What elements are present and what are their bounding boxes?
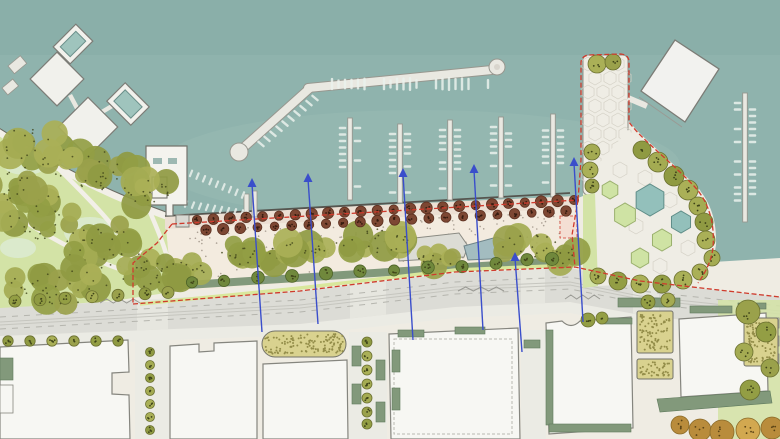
garden-speckle bbox=[656, 324, 658, 326]
green-hex-garden bbox=[631, 248, 648, 268]
brown-tree bbox=[421, 202, 433, 214]
moored-boat bbox=[542, 162, 550, 164]
garden-speckle bbox=[656, 341, 658, 343]
paving-speckle bbox=[453, 228, 455, 230]
garden-speckle bbox=[666, 327, 668, 329]
garden-speckle bbox=[639, 341, 641, 343]
brown-tree bbox=[459, 212, 468, 221]
brown-tree bbox=[235, 223, 246, 234]
garden-speckle bbox=[644, 325, 646, 327]
garden-speckle bbox=[768, 356, 770, 358]
paving-speckle bbox=[420, 220, 422, 222]
olive-tree bbox=[113, 336, 123, 346]
paving-speckle bbox=[438, 217, 440, 219]
planter bbox=[0, 358, 13, 380]
moored-boat bbox=[339, 153, 347, 155]
garden-speckle bbox=[329, 348, 331, 350]
garden-speckle bbox=[292, 339, 294, 341]
planter bbox=[546, 330, 553, 425]
olive-tree bbox=[653, 275, 671, 293]
garden-speckle bbox=[651, 326, 653, 328]
garden-speckle bbox=[663, 362, 665, 364]
paving-speckle bbox=[247, 227, 249, 229]
brown-tree bbox=[389, 205, 398, 214]
moored-boat bbox=[389, 152, 397, 154]
garden-speckle bbox=[756, 357, 758, 359]
garden-speckle bbox=[748, 361, 750, 363]
moored-boat bbox=[350, 79, 352, 90]
planter bbox=[690, 306, 732, 313]
garden-speckle bbox=[666, 346, 668, 348]
garden-speckle bbox=[752, 328, 754, 330]
brown-tree bbox=[355, 217, 365, 227]
olive-tree bbox=[596, 312, 608, 324]
garden-speckle bbox=[750, 337, 752, 339]
planter bbox=[352, 384, 361, 404]
garden-speckle bbox=[266, 337, 268, 339]
moored-boat bbox=[404, 191, 412, 193]
moored-boat bbox=[467, 78, 469, 90]
moored-boat bbox=[490, 165, 498, 167]
garden-speckle bbox=[337, 341, 339, 343]
garden-speckle bbox=[265, 349, 267, 351]
garden-speckle bbox=[666, 348, 668, 350]
garden-speckle bbox=[773, 351, 775, 353]
garden-speckle bbox=[289, 341, 291, 343]
moored-boat bbox=[490, 132, 498, 134]
garden-speckle bbox=[647, 322, 649, 324]
moored-boat bbox=[454, 142, 462, 144]
paving-speckle bbox=[333, 227, 335, 229]
olive-tree bbox=[648, 152, 668, 172]
olive-tree bbox=[362, 419, 372, 429]
paving-speckle bbox=[543, 218, 545, 220]
garden-speckle bbox=[333, 344, 335, 346]
garden-speckle bbox=[659, 314, 661, 316]
brown-tree bbox=[321, 219, 330, 228]
garden-speckle bbox=[758, 340, 760, 342]
garden-speckle bbox=[774, 346, 776, 348]
garden-speckle bbox=[328, 339, 330, 341]
paving-speckle bbox=[339, 236, 341, 238]
moored-boat bbox=[749, 134, 757, 136]
rooftop-unit bbox=[0, 385, 13, 413]
moored-boat bbox=[749, 115, 757, 117]
garden-speckle bbox=[336, 336, 338, 338]
garden-speckle bbox=[279, 350, 281, 352]
moored-boat bbox=[490, 139, 498, 141]
harbor-building-slot bbox=[168, 158, 177, 164]
planter bbox=[352, 346, 361, 366]
paving-speckle bbox=[382, 226, 384, 228]
garden-speckle bbox=[334, 333, 336, 335]
paving-speckle bbox=[265, 230, 267, 232]
brown-tree bbox=[274, 211, 283, 220]
olive-tree bbox=[362, 337, 372, 347]
garden-speckle bbox=[326, 340, 328, 342]
garden-speckle bbox=[652, 361, 654, 363]
brown-tree bbox=[304, 220, 314, 230]
moored-boat bbox=[404, 139, 412, 141]
garden-speckle bbox=[668, 318, 670, 320]
garden-speckle bbox=[264, 338, 266, 340]
garden-speckle bbox=[754, 358, 756, 360]
garden-speckle bbox=[653, 372, 655, 374]
moored-boat bbox=[344, 79, 346, 90]
moored-boat bbox=[415, 79, 417, 89]
paving-speckle bbox=[189, 238, 191, 240]
garden-speckle bbox=[652, 346, 654, 348]
moored-boat bbox=[749, 173, 757, 175]
sage-tree bbox=[422, 261, 435, 274]
olive-tree bbox=[69, 336, 79, 346]
brown-tree bbox=[270, 222, 279, 231]
paving-speckle bbox=[228, 233, 230, 235]
garden-speckle bbox=[654, 339, 656, 341]
paving-speckle bbox=[522, 217, 524, 219]
brown-tree bbox=[208, 214, 219, 225]
olive-tree bbox=[697, 231, 715, 249]
paving-speckle bbox=[201, 239, 203, 241]
moored-boat bbox=[439, 168, 447, 170]
garden-speckle bbox=[639, 324, 641, 326]
garden-speckle bbox=[284, 351, 286, 353]
garden-speckle bbox=[270, 351, 272, 353]
paving-speckle bbox=[543, 225, 545, 227]
olive-tree bbox=[740, 380, 760, 400]
moored-boat bbox=[357, 79, 359, 90]
olive-tree bbox=[631, 275, 649, 293]
garden-speckle bbox=[641, 321, 643, 323]
paving-speckle bbox=[474, 234, 476, 236]
moored-boat bbox=[441, 78, 443, 91]
garden-speckle bbox=[312, 342, 314, 344]
garden-speckle bbox=[752, 326, 754, 328]
brown-tree bbox=[287, 221, 297, 231]
site-plan-canvas bbox=[0, 0, 780, 439]
moored-boat bbox=[339, 127, 347, 129]
garden-speckle bbox=[311, 347, 313, 349]
garden-speckle bbox=[666, 340, 668, 342]
green-hex-garden bbox=[652, 229, 671, 251]
olive-tree bbox=[162, 286, 174, 298]
building bbox=[546, 317, 633, 434]
garden-speckle bbox=[286, 352, 288, 354]
moored-boat bbox=[339, 140, 347, 142]
orange-tree bbox=[736, 418, 760, 439]
building bbox=[263, 360, 348, 439]
garden-speckle bbox=[650, 335, 652, 337]
moored-boat bbox=[331, 78, 333, 90]
brown-tree bbox=[192, 215, 201, 224]
garden-speckle bbox=[750, 361, 752, 363]
garden-speckle bbox=[651, 341, 653, 343]
planter bbox=[392, 388, 400, 410]
garden-speckle bbox=[282, 335, 284, 337]
moored-boat bbox=[402, 77, 404, 90]
garden-speckle bbox=[648, 363, 650, 365]
paving-speckle bbox=[421, 221, 423, 223]
garden-speckle bbox=[325, 336, 327, 338]
moored-boat bbox=[389, 159, 397, 161]
moored-boat bbox=[734, 108, 742, 110]
garden-speckle bbox=[751, 324, 753, 326]
garden-speckle bbox=[657, 339, 659, 341]
garden-speckle bbox=[276, 337, 278, 339]
garden-speckle bbox=[654, 361, 656, 363]
garden-speckle bbox=[749, 325, 751, 327]
garden-speckle bbox=[329, 337, 331, 339]
garden-speckle bbox=[641, 336, 643, 338]
garden-speckle bbox=[327, 334, 329, 336]
finger-dock bbox=[448, 120, 453, 200]
garden-speckle bbox=[653, 323, 655, 325]
garden-speckle bbox=[646, 368, 648, 370]
garden-speckle bbox=[296, 344, 298, 346]
brown-tree bbox=[241, 212, 251, 222]
olive-tree bbox=[146, 348, 155, 357]
moored-boat bbox=[505, 145, 513, 147]
moored-boat bbox=[389, 165, 397, 167]
olive-tree bbox=[3, 336, 13, 346]
paving-speckle bbox=[541, 222, 543, 224]
garden-speckle bbox=[762, 358, 764, 360]
olive-tree bbox=[146, 400, 155, 409]
olive-tree bbox=[362, 351, 372, 361]
moored-boat bbox=[439, 161, 447, 163]
garden-speckle bbox=[668, 320, 670, 322]
garden-speckle bbox=[639, 329, 641, 331]
brown-tree bbox=[372, 215, 383, 226]
paving-speckle bbox=[220, 273, 222, 275]
moored-boat bbox=[454, 168, 462, 170]
olive-tree bbox=[362, 407, 372, 417]
brown-tree bbox=[424, 213, 434, 223]
paving-speckle bbox=[341, 236, 343, 238]
garden-speckle bbox=[653, 317, 655, 319]
garden-speckle bbox=[292, 337, 294, 339]
garden-speckle bbox=[761, 360, 763, 362]
olive-tree bbox=[139, 288, 151, 300]
garden-speckle bbox=[641, 331, 643, 333]
brown-tree bbox=[441, 212, 451, 222]
garden-speckle bbox=[666, 329, 668, 331]
paving-speckle bbox=[483, 228, 485, 230]
moored-boat bbox=[337, 79, 339, 88]
moored-boat bbox=[505, 184, 513, 186]
garden-speckle bbox=[668, 363, 670, 365]
moored-boat bbox=[505, 165, 513, 167]
moored-boat bbox=[490, 184, 498, 186]
moored-boat bbox=[389, 146, 397, 148]
moored-boat bbox=[454, 161, 462, 163]
moored-boat bbox=[409, 77, 411, 91]
olive-tree bbox=[585, 179, 599, 193]
building bbox=[0, 340, 130, 439]
sage-tree bbox=[490, 257, 502, 269]
garden-speckle bbox=[654, 349, 656, 351]
olive-tree bbox=[735, 343, 753, 361]
moored-boat bbox=[389, 133, 397, 135]
sage-tree bbox=[354, 265, 366, 277]
garden-speckle bbox=[660, 323, 662, 325]
garden-speckle bbox=[662, 331, 664, 333]
finger-dock bbox=[348, 118, 353, 200]
paving-speckle bbox=[453, 224, 455, 226]
moored-boat bbox=[389, 79, 391, 88]
moored-boat bbox=[557, 142, 565, 144]
garden-speckle bbox=[663, 320, 665, 322]
garden-speckle bbox=[766, 356, 768, 358]
finger-dock bbox=[743, 93, 748, 222]
paving-speckle bbox=[479, 226, 481, 228]
paving-speckle bbox=[205, 256, 207, 258]
garden-speckle bbox=[764, 347, 766, 349]
brown-tree bbox=[258, 212, 268, 222]
green-hex-garden bbox=[602, 181, 618, 199]
garden-speckle bbox=[292, 352, 294, 354]
moored-boat bbox=[339, 133, 347, 135]
garden-speckle bbox=[772, 355, 774, 357]
orange-tree bbox=[689, 419, 711, 439]
garden-speckle bbox=[657, 374, 659, 376]
garden-speckle bbox=[645, 370, 647, 372]
garden-speckle bbox=[308, 340, 310, 342]
garden-speckle bbox=[292, 345, 294, 347]
garden-speckle bbox=[644, 349, 646, 351]
garden-speckle bbox=[330, 341, 332, 343]
moored-boat bbox=[749, 193, 757, 195]
garden-speckle bbox=[754, 344, 756, 346]
garden-speckle bbox=[660, 346, 662, 348]
garden-speckle bbox=[663, 375, 665, 377]
moored-boat bbox=[439, 142, 447, 144]
garden-speckle bbox=[287, 342, 289, 344]
garden-speckle bbox=[657, 329, 659, 331]
olive-tree bbox=[146, 374, 155, 383]
paving-speckle bbox=[471, 230, 473, 232]
garden-speckle bbox=[303, 337, 305, 339]
moored-boat bbox=[749, 128, 757, 130]
brown-tree bbox=[339, 207, 349, 217]
garden-speckle bbox=[754, 335, 756, 337]
garden-speckle bbox=[746, 332, 748, 334]
garden-speckle bbox=[656, 367, 658, 369]
garden-speckle bbox=[273, 337, 275, 339]
paving-speckle bbox=[537, 217, 539, 219]
moored-boat bbox=[404, 152, 412, 154]
paving-speckle bbox=[553, 216, 555, 218]
garden-speckle bbox=[281, 342, 283, 344]
moored-boat bbox=[396, 78, 398, 91]
garden-speckle bbox=[667, 372, 669, 374]
garden-speckle bbox=[751, 358, 753, 360]
moored-boat bbox=[505, 139, 513, 141]
planter bbox=[455, 327, 485, 334]
paving-speckle bbox=[429, 228, 431, 230]
paving-speckle bbox=[452, 220, 454, 222]
planter bbox=[524, 340, 540, 348]
moored-boat bbox=[490, 126, 498, 128]
paving-speckle bbox=[507, 214, 509, 216]
planter bbox=[376, 402, 385, 422]
masterplan-drawing bbox=[0, 0, 780, 439]
garden-speckle bbox=[652, 314, 654, 316]
garden-speckle bbox=[769, 348, 771, 350]
garden-speckle bbox=[268, 351, 270, 353]
garden-speckle bbox=[655, 320, 657, 322]
moored-boat bbox=[734, 160, 742, 162]
garden-speckle bbox=[284, 341, 286, 343]
garden-speckle bbox=[654, 364, 656, 366]
olive-tree bbox=[633, 141, 651, 159]
garden-speckle bbox=[748, 333, 750, 335]
garden-speckle bbox=[277, 351, 279, 353]
olive-tree bbox=[362, 365, 372, 375]
garden-speckle bbox=[762, 345, 764, 347]
garden-speckle bbox=[324, 345, 326, 347]
planter bbox=[398, 330, 424, 337]
moored-boat bbox=[339, 146, 347, 148]
paving-speckle bbox=[198, 241, 200, 243]
garden-speckle bbox=[753, 361, 755, 363]
garden-speckle bbox=[278, 338, 280, 340]
garden-speckle bbox=[338, 338, 340, 340]
garden-speckle bbox=[342, 341, 344, 343]
garden-speckle bbox=[326, 351, 328, 353]
garden-speckle bbox=[338, 348, 340, 350]
brown-tree bbox=[323, 207, 334, 218]
garden-speckle bbox=[307, 346, 309, 348]
garden-speckle bbox=[328, 351, 330, 353]
paving-speckle bbox=[201, 243, 203, 245]
paving-speckle bbox=[280, 228, 282, 230]
moored-boat bbox=[749, 141, 757, 143]
paving-speckle bbox=[469, 228, 471, 230]
garden-speckle bbox=[313, 351, 315, 353]
moored-boat bbox=[734, 102, 742, 104]
olive-tree bbox=[59, 292, 71, 304]
olive-tree bbox=[362, 393, 372, 403]
garden-speckle bbox=[651, 332, 653, 334]
brown-tree bbox=[407, 214, 417, 224]
olive-tree bbox=[146, 413, 155, 422]
garden-speckle bbox=[265, 346, 267, 348]
brown-tree bbox=[290, 210, 300, 220]
garden-speckle bbox=[284, 343, 286, 345]
moored-boat bbox=[542, 155, 550, 157]
garden-speckle bbox=[640, 372, 642, 374]
moored-boat bbox=[404, 133, 412, 135]
paving-speckle bbox=[195, 237, 197, 239]
garden-speckle bbox=[300, 334, 302, 336]
moored-boat bbox=[557, 155, 565, 157]
garden-speckle bbox=[324, 349, 326, 351]
moored-boat bbox=[439, 187, 447, 189]
brown-tree bbox=[438, 202, 448, 212]
moored-boat bbox=[749, 180, 757, 182]
garden-speckle bbox=[332, 335, 334, 337]
moored-boat bbox=[557, 162, 565, 164]
paving-speckle bbox=[532, 226, 534, 228]
moored-boat bbox=[749, 108, 757, 110]
paving-speckle bbox=[309, 271, 311, 273]
finger-dock bbox=[499, 117, 504, 198]
sage-tree bbox=[545, 252, 558, 265]
moored-boat bbox=[734, 199, 742, 201]
moored-boat bbox=[339, 166, 347, 168]
brown-tree bbox=[338, 218, 347, 227]
